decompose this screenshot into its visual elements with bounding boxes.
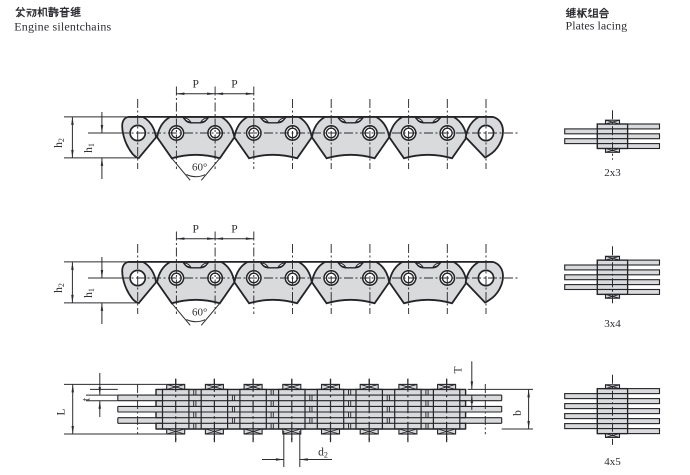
svg-text:2x3: 2x3	[604, 167, 621, 179]
svg-text:P: P	[193, 79, 199, 91]
svg-text:60°: 60°	[192, 307, 207, 319]
svg-text:b: b	[512, 410, 524, 416]
svg-text:P: P	[231, 224, 237, 236]
svg-text:P: P	[231, 79, 237, 91]
svg-text:Engine silentchains: Engine silentchains	[14, 20, 111, 34]
svg-text:Plates lacing: Plates lacing	[566, 19, 628, 33]
svg-text:L: L	[56, 408, 68, 415]
svg-text:P: P	[193, 224, 199, 236]
svg-text:3x4: 3x4	[604, 318, 621, 330]
svg-text:T: T	[453, 366, 465, 373]
svg-text:4x5: 4x5	[604, 456, 621, 468]
svg-text:60°: 60°	[192, 162, 207, 174]
